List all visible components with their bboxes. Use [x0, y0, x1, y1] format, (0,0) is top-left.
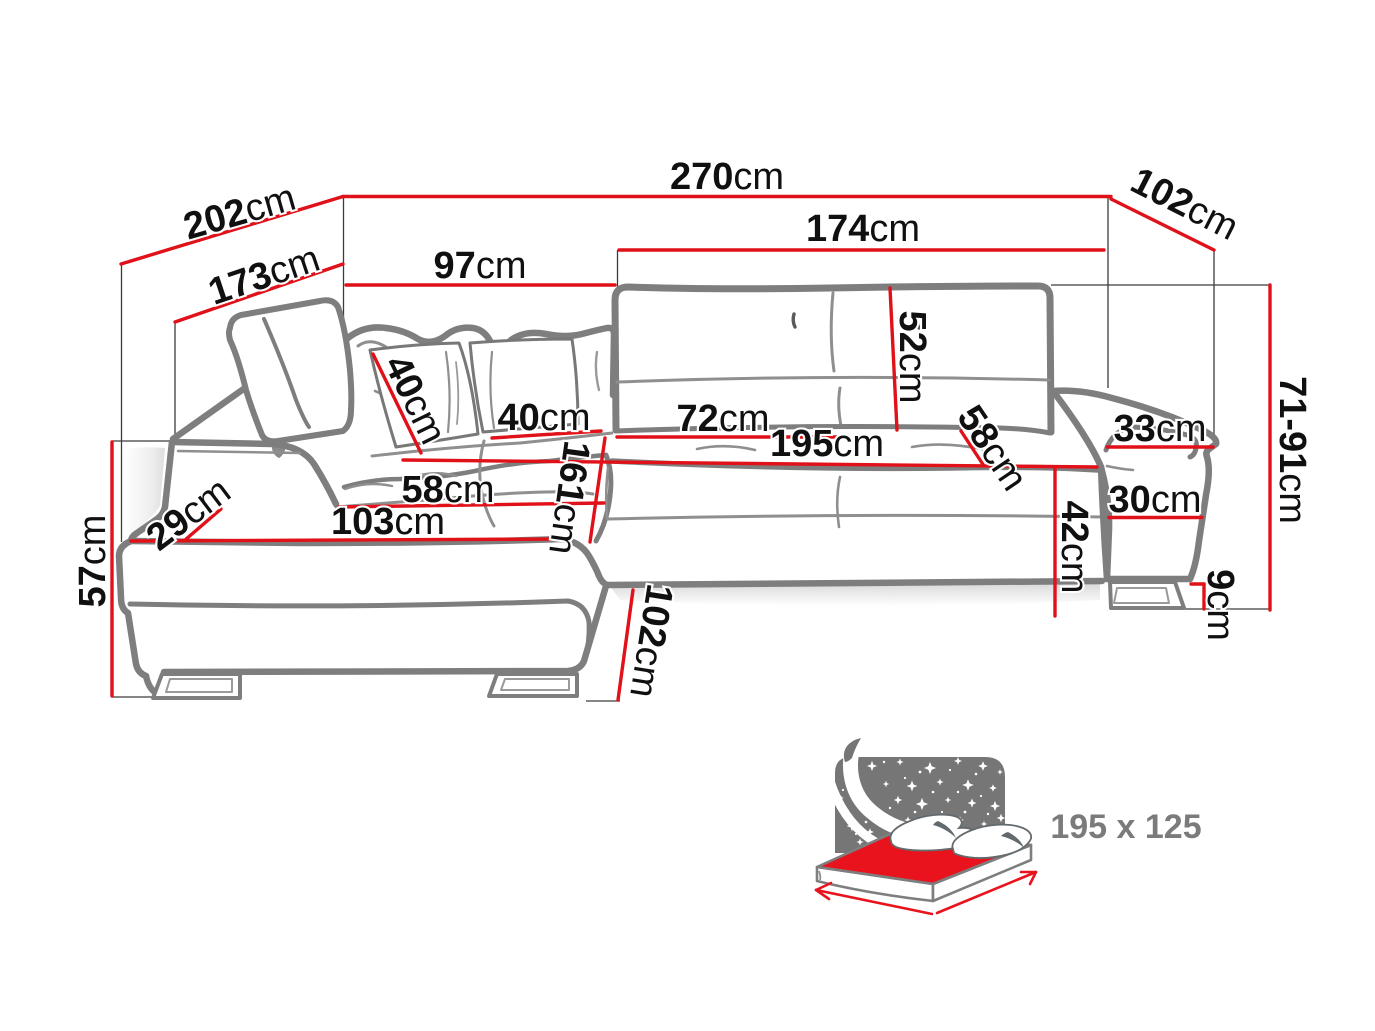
svg-text:97cm: 97cm: [434, 245, 527, 287]
svg-text:52cm: 52cm: [891, 311, 933, 404]
svg-text:103cm: 103cm: [331, 501, 445, 543]
svg-text:30cm: 30cm: [1109, 479, 1202, 521]
svg-text:40cm: 40cm: [498, 397, 591, 439]
svg-text:57cm: 57cm: [72, 515, 114, 608]
svg-text:42cm: 42cm: [1053, 501, 1095, 594]
svg-text:195 x 125: 195 x 125: [1050, 808, 1201, 846]
svg-text:72cm: 72cm: [677, 398, 770, 440]
svg-text:9cm: 9cm: [1199, 569, 1241, 641]
svg-text:33cm: 33cm: [1114, 408, 1207, 450]
svg-text:270cm: 270cm: [670, 156, 784, 198]
svg-text:195cm: 195cm: [770, 423, 884, 465]
svg-text:174cm: 174cm: [806, 208, 920, 250]
svg-text:71-91cm: 71-91cm: [1271, 376, 1313, 524]
